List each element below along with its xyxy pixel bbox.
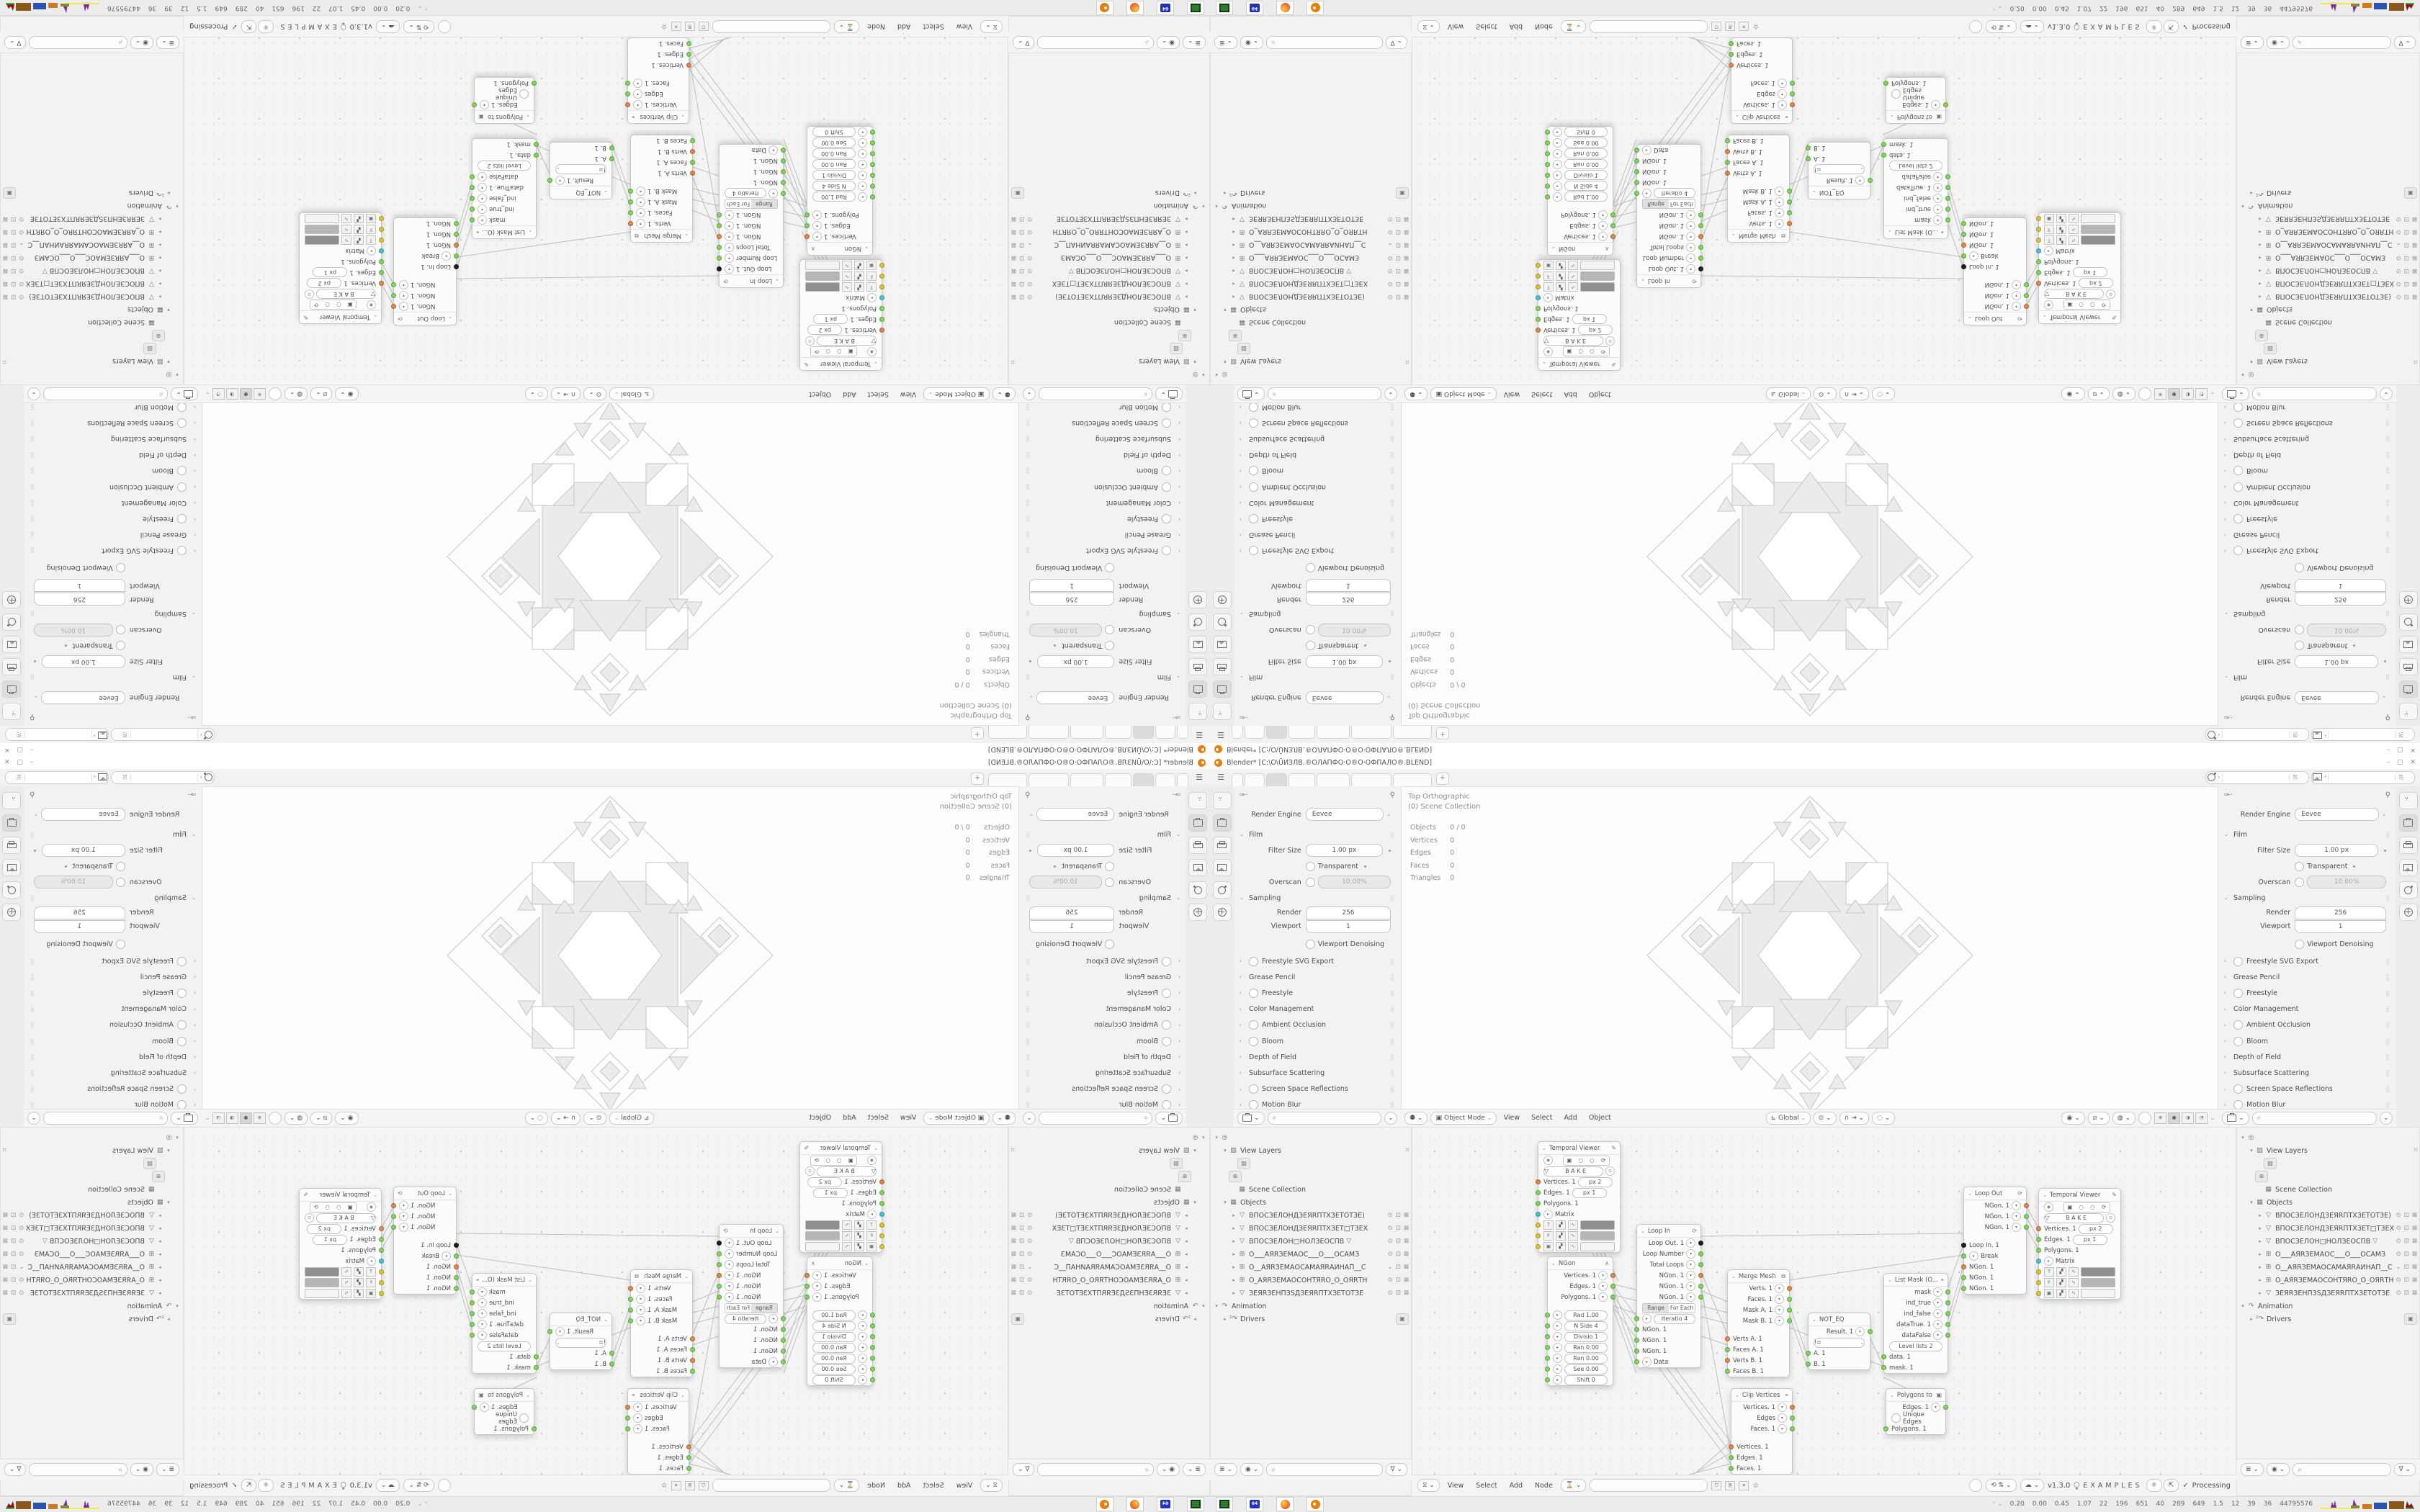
section-ambient-occlusion[interactable]: ›Ambient Occlusion⣿: [24, 479, 202, 495]
outliner-row[interactable]: ▸▽ЗЕЯRЗЕНПЗSДЗЕЯRПТХЗЕТОТЗЕ⊙⊡⊠: [3, 212, 163, 225]
outliner-row[interactable]: ▸▽ВПОСЗЕЛОНДЗЕЯRПТХЗЕТОТЗЕ)⊙⊡⊠: [1230, 1209, 1409, 1222]
viewport-menu-object[interactable]: Object: [809, 1114, 831, 1122]
slider-arrow-icon[interactable]: ▸: [858, 1364, 867, 1374]
color-list-button[interactable]: ▞: [854, 1220, 864, 1230]
xbox-toggle-icon[interactable]: ⊠: [1404, 1277, 1409, 1284]
input-socket-color[interactable]: [2036, 1280, 2041, 1285]
viewer-eye-button[interactable]: ◉: [367, 300, 376, 310]
input-socket-green[interactable]: [454, 253, 459, 258]
section-bloom[interactable]: ›Bloom⣿: [24, 463, 202, 479]
eye-toggle-icon[interactable]: ⊙: [1388, 1225, 1393, 1232]
segment-range[interactable]: Range: [1643, 1304, 1669, 1313]
expand-arrow[interactable]: ▸: [2257, 255, 2264, 261]
value-slider[interactable]: N Side 4: [1564, 181, 1608, 192]
input-socket-green[interactable]: [1883, 1426, 1888, 1431]
output-socket-green[interactable]: [472, 102, 477, 107]
section-checkbox[interactable]: [1249, 546, 1258, 556]
input-socket-green[interactable]: [1545, 151, 1550, 156]
workspace-tab[interactable]: [1393, 773, 1432, 786]
expand-arrow[interactable]: ▸: [156, 1264, 163, 1270]
properties-tab-output[interactable]: [2399, 658, 2418, 675]
properties-tab-view-layer[interactable]: [3, 859, 22, 876]
color-type-button[interactable]: ▣: [366, 1289, 376, 1298]
scene-selector-field[interactable]: [2223, 772, 2289, 783]
screen-toggle-icon[interactable]: ⊡: [11, 1225, 16, 1232]
value-slider[interactable]: Rad 1.00: [1564, 1310, 1608, 1320]
color-curve-button[interactable]: ∿: [341, 1278, 351, 1287]
input-socket-green[interactable]: [1729, 1455, 1734, 1460]
molecule-button[interactable]: ⚛: [258, 20, 274, 33]
outliner-row[interactable]: ▸⊞О___АЯRЗЕМАОС___О___ОСАМЗ⊙⊡⊠: [2257, 1248, 2417, 1261]
input-socket-black[interactable]: [1961, 264, 1966, 269]
screen-toggle-icon[interactable]: ⊡: [1019, 228, 1024, 235]
outliner-row[interactable]: ▦Scene Collection: [1011, 316, 1190, 329]
level-lists-button[interactable]: Level lists 2: [478, 161, 531, 171]
prop-value-field[interactable]: 1: [2295, 920, 2386, 933]
expand-arrow[interactable]: ▾: [1191, 1148, 1198, 1153]
output-socket-orange[interactable]: [805, 1273, 810, 1278]
node-header[interactable]: ⌄NOT_EQ: [550, 1313, 611, 1326]
slider-arrow-icon[interactable]: ▸: [858, 181, 867, 191]
section-subsurface-scattering[interactable]: ›Subsurface Scattering⣿: [2218, 431, 2396, 447]
operator-dropdown[interactable]: !=⌄: [1814, 1338, 1865, 1348]
output-socket-green[interactable]: [1790, 1426, 1795, 1431]
value-slider[interactable]: Iteratio 4: [725, 1314, 766, 1324]
section-subsurface-scattering[interactable]: ›Subsurface Scattering⣿: [1234, 1065, 1401, 1081]
node-ngon[interactable]: ⌄NGon∧Vertices. 1▾Edges. 1▾Polygons. 1▾▸…: [1547, 1256, 1613, 1386]
xbox-toggle-icon[interactable]: ⊠: [3, 1238, 8, 1245]
search-input[interactable]: ⌕: [2252, 1112, 2377, 1125]
properties-tab-scene[interactable]: [1189, 613, 1208, 631]
viewer-display-group[interactable]: ▣○○⟳: [810, 1156, 857, 1166]
outliner-row[interactable]: ▸²↷Drivers▣: [3, 186, 172, 199]
operator-dropdown[interactable]: !=⌄: [555, 165, 606, 175]
color-type-button[interactable]: T: [866, 1220, 877, 1230]
input-socket-green[interactable]: [870, 1367, 875, 1372]
input-socket-green[interactable]: [1545, 1367, 1550, 1372]
output-socket-green[interactable]: [805, 1295, 810, 1300]
section-checkbox[interactable]: [177, 989, 187, 998]
section-checkbox[interactable]: [2233, 1020, 2243, 1030]
outliner-row[interactable]: ▾▦Objects: [1222, 303, 1409, 316]
input-socket-orange[interactable]: [454, 243, 459, 248]
screen-toggle-icon[interactable]: ⊡: [1396, 280, 1401, 287]
slider-arrow-icon[interactable]: ▸: [1553, 1343, 1562, 1352]
section-bloom[interactable]: ›Bloom⣿: [2218, 463, 2396, 479]
node-header[interactable]: ⌄NOT_EQ: [1809, 186, 1870, 199]
color-swatch[interactable]: [805, 1220, 840, 1230]
expand-arrow[interactable]: ▸: [165, 1316, 172, 1322]
color-curve-button[interactable]: ∿: [1568, 1242, 1578, 1251]
input-socket-color[interactable]: [1536, 1244, 1541, 1249]
socket-menu-icon[interactable]: ▾: [1933, 1298, 1942, 1308]
input-socket-green[interactable]: [2036, 1237, 2041, 1242]
falloff-button[interactable]: ◌ ⌄: [1872, 1112, 1895, 1125]
color-type-button[interactable]: ▣: [1543, 1242, 1554, 1251]
section-checkbox[interactable]: [1162, 482, 1171, 492]
screen-toggle-icon[interactable]: ⊡: [2404, 293, 2409, 300]
copy-icon[interactable]: ⎘: [119, 731, 131, 738]
expand-button[interactable]: ▸: [2044, 246, 2053, 256]
input-socket-orange[interactable]: [1961, 1264, 1966, 1269]
node-clip[interactable]: ⌄Clip Vertices⌖Vertices. 1▾Edges▾Faces. …: [1731, 1388, 1793, 1475]
color-type-button[interactable]: T: [366, 235, 376, 245]
output-socket-orange[interactable]: [628, 221, 633, 226]
xbox-toggle-icon[interactable]: ⊠: [1404, 215, 1409, 222]
output-socket-green[interactable]: [628, 1308, 633, 1313]
chk-toggle-icon[interactable]: ⌄: [1388, 241, 1393, 248]
expand-button[interactable]: ▸: [867, 293, 877, 302]
slider-arrow-icon[interactable]: ▸: [858, 1354, 867, 1363]
viewer-eye-button[interactable]: ◉: [367, 1202, 376, 1212]
output-socket-green[interactable]: [625, 1426, 630, 1431]
properties-tab-world[interactable]: [2399, 904, 2418, 921]
pin-icon[interactable]: ☆: [1752, 23, 1759, 31]
xbox-toggle-icon[interactable]: ⊠: [2412, 1212, 2417, 1219]
outliner-row[interactable]: ▾▨View Layers⌑: [1011, 1144, 1198, 1157]
screen-toggle-icon[interactable]: ⊡: [1019, 267, 1024, 274]
expand-arrow[interactable]: ▸: [1230, 281, 1237, 287]
expand-arrow[interactable]: ▾: [1213, 372, 1220, 377]
screen-toggle-icon[interactable]: ⊡: [2404, 1212, 2409, 1219]
output-socket-green[interactable]: [1945, 196, 1950, 201]
color-list-button[interactable]: ▞: [854, 271, 864, 281]
properties-tab-view-layer[interactable]: [1189, 636, 1208, 653]
outliner-row[interactable]: ▾▦Objects: [2248, 303, 2417, 316]
shading-material[interactable]: ◑: [2182, 389, 2194, 400]
value-field[interactable]: px 1: [813, 315, 848, 325]
output-socket-green[interactable]: [625, 91, 630, 96]
node-header[interactable]: ⌄Temporal Viewer✎: [800, 357, 882, 370]
outliner-search-input[interactable]: ⌕: [1266, 36, 1382, 49]
input-socket-green[interactable]: [1634, 1349, 1639, 1354]
options-dropdown[interactable]: ⌄: [1023, 1112, 1036, 1125]
input-socket-cyan[interactable]: [379, 248, 384, 253]
section-subsurface-scattering[interactable]: ›Subsurface Scattering⣿: [2218, 1065, 2396, 1081]
xbox-toggle-icon[interactable]: ⊠: [1404, 1212, 1409, 1219]
render-engine-dropdown[interactable]: Eevee: [2295, 691, 2379, 704]
workspace-tab[interactable]: [1245, 773, 1265, 786]
color-type-button[interactable]: T: [2044, 235, 2054, 245]
output-socket-orange[interactable]: [625, 102, 630, 107]
shield-icon[interactable]: ⛉: [699, 22, 709, 32]
falloff-button[interactable]: ◌ ⌄: [525, 388, 548, 401]
editor-type-button[interactable]: ⚉ ⌄: [992, 1112, 1016, 1125]
viewport-menu-view[interactable]: View: [1504, 390, 1520, 398]
expand-arrow[interactable]: ▾: [1191, 1200, 1198, 1205]
node-polyto[interactable]: ⌄Polygons to ...▣Edges. 1▾Unique EdgesPo…: [1886, 77, 1946, 124]
screen-toggle-icon[interactable]: ⊡: [1019, 1290, 1024, 1297]
socket-menu-icon[interactable]: ▾: [1775, 208, 1784, 217]
outliner-row[interactable]: ▸⊞О__АЯRЗЕМАОСАМАЯRАИНАП__С⌄⊡⊠: [2257, 238, 2417, 251]
close-button[interactable]: ✕: [2410, 746, 2416, 753]
eye-toggle-icon[interactable]: ⊙: [1388, 293, 1393, 300]
screen-toggle-icon[interactable]: ⊡: [11, 1238, 16, 1245]
xbox-toggle-icon[interactable]: ⊠: [2412, 228, 2417, 235]
proportional-edit-button[interactable]: ⊙ ⌄: [583, 388, 606, 401]
eye-toggle-icon[interactable]: ⊙: [19, 1212, 24, 1219]
viewlayer-selector-field[interactable]: [25, 729, 91, 740]
value-slider[interactable]: Ran 0.00: [1564, 149, 1608, 159]
properties-tab-render[interactable]: [3, 814, 22, 832]
shading-wireframe[interactable]: ⊕: [254, 1112, 266, 1124]
driver-box-icon[interactable]: ▣: [1011, 187, 1024, 199]
input-socket-green[interactable]: [870, 1334, 875, 1339]
bake-target-button[interactable]: ⊙: [2106, 289, 2115, 299]
outliner-display-dropdown[interactable]: ≣ ⌄: [2241, 36, 2264, 49]
outliner-row[interactable]: ⊕: [2248, 1170, 2417, 1183]
color-list-button[interactable]: ▞: [1556, 1242, 1566, 1251]
color-type-button[interactable]: F: [866, 271, 877, 281]
outliner-row[interactable]: ▾▨View Layers⌑: [2248, 355, 2417, 368]
value-slider[interactable]: Iteratio 4: [1654, 189, 1695, 199]
render-engine-dropdown[interactable]: Eevee: [1306, 808, 1384, 821]
collapse-icon[interactable]: ⌄: [864, 1261, 869, 1266]
screen-toggle-icon[interactable]: ⊡: [1019, 1212, 1024, 1219]
close-button[interactable]: ✕: [2410, 759, 2416, 766]
section-film[interactable]: ⌄Film⣿: [24, 827, 202, 842]
value-slider[interactable]: Divisio 1: [812, 1332, 856, 1342]
workspace-tab[interactable]: [1289, 773, 1315, 786]
node-loopin[interactable]: ⌄Loop In⟳Loop Out. 1▾Loop Number▾Total L…: [719, 1224, 784, 1368]
outliner-row[interactable]: ▦Scene Collection: [1230, 316, 1409, 329]
section-color-management[interactable]: ›Color Management⣿: [24, 495, 202, 510]
xray-toggle-button[interactable]: ⧄ ⌄: [310, 1112, 332, 1125]
color-swatch[interactable]: [805, 1231, 840, 1241]
input-socket-green[interactable]: [532, 81, 537, 86]
outliner-row[interactable]: ▸⊞О_АЯRЗЕМАОСОНТЯRО_О_ОЯRТН⊙⊡⊠: [2257, 1274, 2417, 1287]
outliner-row[interactable]: ▾▨View Layers⌑: [3, 355, 172, 368]
input-socket-green[interactable]: [870, 130, 875, 135]
section-checkbox[interactable]: [2233, 546, 2243, 556]
color-list-button[interactable]: ▞: [1556, 271, 1566, 281]
level-lists-button[interactable]: Level lists 2: [1889, 161, 1942, 171]
node-tree-field[interactable]: [1590, 20, 1708, 33]
expand-arrow[interactable]: ▸: [1230, 1290, 1237, 1296]
properties-tab-output[interactable]: [2399, 837, 2418, 854]
expand-arrow[interactable]: ▾: [1191, 359, 1198, 364]
output-socket-green[interactable]: [717, 1284, 722, 1289]
outliner-row[interactable]: ▾↷Animation: [1011, 1300, 1207, 1313]
node-menu-add[interactable]: Add: [1510, 23, 1523, 31]
output-socket-green[interactable]: [1787, 189, 1792, 194]
section-checkbox[interactable]: [1249, 957, 1258, 966]
color-curve-button[interactable]: ∿: [1568, 282, 1578, 292]
color-type-button[interactable]: ▣: [2044, 214, 2054, 223]
imgbtn-icon[interactable]: ▨: [1237, 1158, 1250, 1169]
outliner-filter-type-dropdown[interactable]: ◉ ⌄: [130, 1463, 153, 1476]
node-ngon[interactable]: ⌄NGon∧Vertices. 1▾Edges. 1▾Polygons. 1▾▸…: [807, 1256, 873, 1386]
expand-button[interactable]: ▸: [1543, 293, 1553, 302]
color-swatch[interactable]: [1580, 271, 1615, 281]
input-socket-orange[interactable]: [879, 328, 884, 333]
outliner-row[interactable]: ▸⊞О_АЯRЗЕМАОСОНТЯRО_О_ОЯRТН⊙⊡⊠: [1011, 225, 1190, 238]
value-field[interactable]: px 1: [813, 1188, 848, 1198]
expand-arrow[interactable]: ▾: [174, 1303, 181, 1309]
socket-menu-icon[interactable]: ▾: [399, 1201, 408, 1210]
workspace-tab[interactable]: [1133, 726, 1154, 739]
socket-menu-icon[interactable]: ▾: [636, 1295, 645, 1304]
expand-button[interactable]: ▸: [768, 1357, 778, 1367]
node-checkbox[interactable]: [519, 89, 529, 99]
properties-tab-world[interactable]: [2399, 591, 2418, 608]
prop-value-field[interactable]: 1.00 px: [2295, 844, 2378, 857]
xbox-toggle-icon[interactable]: ⊠: [2412, 280, 2417, 287]
input-socket-green[interactable]: [1545, 194, 1550, 199]
output-socket-green[interactable]: [547, 178, 552, 183]
outliner-row[interactable]: ▸⊞О__АЯRЗЕМАОСАМАЯRАИНАП__С⌄⊡⊠: [1230, 238, 1409, 251]
section-checkbox[interactable]: [2233, 402, 2243, 412]
shading-rendered[interactable]: ◔: [212, 389, 225, 400]
prop-value-field[interactable]: 1: [34, 580, 125, 593]
expand-arrow[interactable]: ▾: [2239, 1303, 2246, 1309]
bake-button[interactable]: ▽B A K E: [316, 289, 376, 300]
color-list-button[interactable]: ▞: [1556, 1231, 1566, 1241]
section-checkbox[interactable]: [1162, 467, 1171, 476]
outliner-search-input[interactable]: ⌕: [1266, 1463, 1382, 1476]
outliner-row[interactable]: ▸▽ВПОСЗЕЛОН□НОЛЗЕОСПВ▽⊙⊡⊠: [1011, 264, 1190, 277]
expand-arrow[interactable]: ▸: [156, 1238, 163, 1244]
options-dropdown[interactable]: ⌄: [1023, 388, 1036, 401]
outliner-row[interactable]: ▾◎: [3, 1131, 181, 1144]
input-socket-green[interactable]: [532, 1426, 537, 1431]
outliner-row[interactable]: ▸▽ВПОСЗЕЛОН□НОЛЗЕОСПВ▽⊙⊡⊠: [1230, 264, 1409, 277]
node-header[interactable]: ⌄Polygons to ...▣: [475, 1389, 534, 1402]
node-loopin[interactable]: ⌄Loop In⟳Loop Out. 1▾Loop Number▾Total L…: [1636, 144, 1701, 288]
slider-arrow-icon[interactable]: ▸: [858, 192, 867, 202]
node-menu-select[interactable]: Select: [923, 23, 944, 31]
input-socket-green[interactable]: [1634, 1327, 1639, 1332]
output-socket-green[interactable]: [628, 189, 633, 194]
snap-button[interactable]: ∩ ⇥ ⌄: [1839, 1112, 1869, 1125]
outliner-filter-type-dropdown[interactable]: ◉ ⌄: [1240, 36, 1263, 49]
color-swatch[interactable]: [805, 261, 840, 270]
value-slider[interactable]: Rad 1.00: [1564, 192, 1608, 202]
refresh-circle-button[interactable]: [1969, 20, 1982, 33]
output-socket-green[interactable]: [1945, 207, 1950, 212]
socket-menu-icon[interactable]: ▾: [1933, 204, 1942, 214]
collapse-icon[interactable]: ⌄: [1812, 1317, 1816, 1323]
socket-menu-icon[interactable]: ▾: [1775, 1284, 1784, 1293]
collapse-icon[interactable]: ⌄: [775, 279, 779, 284]
node-tv2[interactable]: ⌄Temporal Viewer✎◉▣○○⟳▽B A K E⊙Vertices.…: [2038, 212, 2121, 324]
socket-menu-icon[interactable]: ▾: [1775, 219, 1784, 228]
socket-menu-icon[interactable]: ▾: [725, 221, 734, 230]
collapse-icon[interactable]: ⌄: [1968, 1191, 1972, 1197]
bake-button[interactable]: ▽B A K E: [817, 1166, 877, 1176]
outliner-row[interactable]: ▸²↷Drivers▣: [1011, 1313, 1198, 1326]
editor-type-button[interactable]: ⌄: [1155, 388, 1183, 401]
socket-menu-icon[interactable]: ▾: [812, 221, 822, 230]
socket-menu-icon[interactable]: ▾: [636, 1316, 645, 1326]
collapse-icon[interactable]: ⌄: [1542, 361, 1546, 367]
outliner-row[interactable]: ▾▨View Layers⌑: [1222, 355, 1409, 368]
input-socket-orange[interactable]: [2036, 1226, 2041, 1231]
bake-target-button[interactable]: ⊙: [805, 1166, 815, 1176]
editor-type-button[interactable]: ⌄: [171, 388, 198, 401]
value-slider[interactable]: Ran 0.00: [812, 160, 856, 170]
molecule-button[interactable]: ⚛: [2146, 1479, 2162, 1492]
expand-arrow[interactable]: ▸: [1191, 1316, 1198, 1322]
input-socket-green[interactable]: [781, 191, 786, 196]
output-socket-green[interactable]: [805, 212, 810, 217]
workspace-tab[interactable]: [1232, 726, 1243, 739]
input-socket-green[interactable]: [686, 1455, 691, 1460]
output-socket-green[interactable]: [1790, 1416, 1795, 1421]
properties-tab-scene[interactable]: [1213, 613, 1232, 631]
eye-toggle-icon[interactable]: ⊙: [2396, 1251, 2401, 1258]
value-slider[interactable]: Ran 0.00: [812, 1343, 856, 1353]
socket-menu-icon[interactable]: ▾: [725, 1282, 734, 1291]
input-socket-color[interactable]: [879, 1233, 884, 1238]
output-socket-green[interactable]: [2024, 1225, 2029, 1230]
value-field[interactable]: px 2: [1578, 325, 1613, 336]
expand-arrow[interactable]: ▾: [1222, 307, 1229, 312]
node-polyto[interactable]: ⌄Polygons to ...▣Edges. 1▾Unique EdgesPo…: [1886, 1388, 1946, 1435]
properties-tab-view-layer[interactable]: [1213, 859, 1232, 876]
input-socket-green[interactable]: [781, 1359, 786, 1364]
outliner-display-dropdown[interactable]: ≣ ⌄: [2241, 1463, 2264, 1476]
expand-arrow[interactable]: ▸: [156, 1290, 163, 1296]
outliner-row[interactable]: ⊕: [1222, 329, 1409, 342]
expand-arrow[interactable]: ▸: [1183, 242, 1190, 248]
falloff-button[interactable]: ◌ ⌄: [1872, 388, 1895, 401]
shading-dropdown[interactable]: ⌄: [205, 392, 210, 397]
expand-arrow[interactable]: ▾: [174, 372, 181, 377]
xbox-toggle-icon[interactable]: ⊠: [3, 1277, 8, 1284]
collapse-icon[interactable]: ⌄: [604, 1317, 608, 1323]
viewer-toggle[interactable]: ○: [1587, 1156, 1598, 1165]
checkbox[interactable]: [1105, 626, 1114, 635]
eye-toggle-icon[interactable]: ⊙: [1027, 254, 1032, 261]
mode-dropdown[interactable]: ▣Object Mode⌄: [1430, 388, 1496, 401]
input-socket-green[interactable]: [1634, 1338, 1639, 1343]
expand-arrow[interactable]: ▸: [156, 229, 163, 235]
output-socket-green[interactable]: [1698, 212, 1703, 217]
add-workspace-button[interactable]: +: [1436, 773, 1449, 785]
color-curve-button[interactable]: ∿: [842, 271, 852, 281]
screen-toggle-icon[interactable]: ⊡: [2404, 1277, 2409, 1284]
color-type-button[interactable]: F: [866, 1231, 877, 1241]
section-grease-pencil[interactable]: ›Grease Pencil⣿: [1234, 969, 1401, 985]
output-socket-green[interactable]: [470, 196, 475, 201]
collapse-icon[interactable]: ⌄: [1888, 1277, 1892, 1283]
color-swatch[interactable]: [2081, 1267, 2115, 1277]
outliner-filter-type-dropdown[interactable]: ◉ ⌄: [2267, 36, 2290, 49]
collapse-icon[interactable]: ⌄: [526, 114, 530, 120]
workspace-tab[interactable]: [1070, 773, 1103, 786]
shading-solid[interactable]: ●: [240, 1112, 252, 1124]
node-menu-view[interactable]: View: [1448, 23, 1464, 31]
output-socket-green[interactable]: [1610, 223, 1615, 228]
xbox-toggle-icon[interactable]: ⊠: [1011, 267, 1016, 274]
driver-box-icon[interactable]: ▣: [1396, 1313, 1409, 1325]
outliner-row[interactable]: ▸▽ВПОСЗЕЛОНДЗЕЯRПТХЗЕТ□ТЗЕХ⊙⊡⊠: [1011, 277, 1190, 290]
expand-arrow[interactable]: ▸: [1230, 1251, 1237, 1257]
properties-tab-scene[interactable]: [1213, 881, 1232, 899]
node-header[interactable]: ⌄Merge Mesh⧉: [631, 229, 692, 242]
workspace-tab[interactable]: [1245, 726, 1265, 739]
node-header[interactable]: ⌄Polygons to ...▣: [1886, 110, 1945, 123]
checkbox[interactable]: [1105, 862, 1114, 871]
output-socket-green[interactable]: [717, 256, 722, 261]
outliner-row[interactable]: ▸⊞О___АЯRЗЕМАОС___О___ОСАМЗ⊙⊡⊠: [3, 251, 163, 264]
input-socket-green[interactable]: [1545, 1377, 1550, 1382]
input-socket-green[interactable]: [1634, 148, 1639, 153]
eye-toggle-icon[interactable]: ⊙: [2396, 1290, 2401, 1297]
chk-toggle-icon[interactable]: ⌄: [2396, 241, 2401, 248]
eye-toggle-icon[interactable]: ⊙: [19, 1290, 24, 1297]
